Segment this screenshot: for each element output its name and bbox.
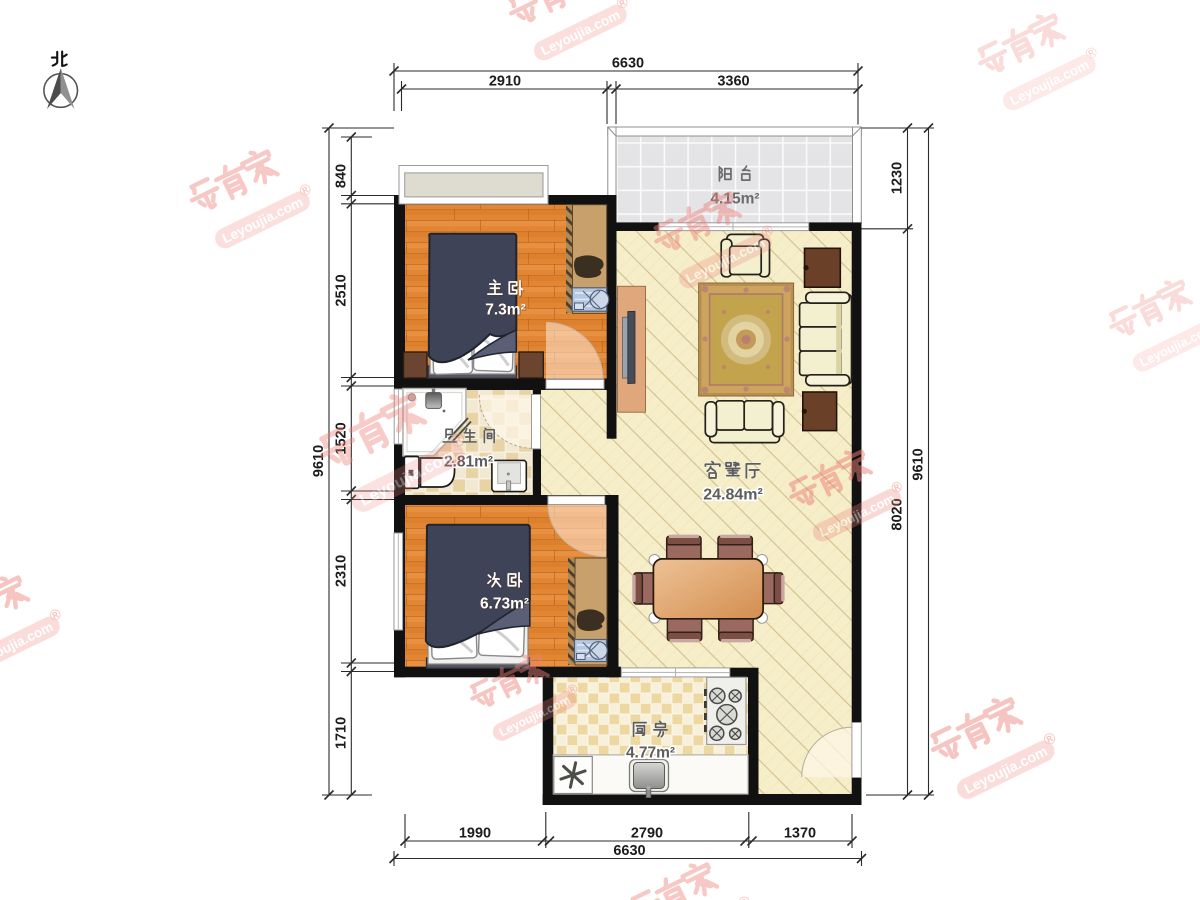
svg-text:6630: 6630 bbox=[613, 843, 645, 859]
svg-text:1710: 1710 bbox=[334, 717, 350, 749]
svg-text:4.77m²: 4.77m² bbox=[626, 745, 675, 762]
svg-text:1990: 1990 bbox=[459, 826, 491, 842]
svg-text:24.84m²: 24.84m² bbox=[703, 487, 763, 504]
svg-text:840: 840 bbox=[334, 164, 350, 188]
svg-text:9610: 9610 bbox=[311, 445, 327, 477]
svg-text:2310: 2310 bbox=[334, 555, 350, 587]
svg-text:2790: 2790 bbox=[631, 826, 663, 842]
svg-text:2510: 2510 bbox=[334, 274, 350, 306]
svg-text:9610: 9610 bbox=[911, 448, 927, 480]
svg-text:6630: 6630 bbox=[612, 56, 644, 72]
svg-text:6.73m²: 6.73m² bbox=[480, 596, 529, 613]
svg-text:2910: 2910 bbox=[489, 74, 521, 90]
svg-text:3360: 3360 bbox=[717, 74, 749, 90]
svg-text:1230: 1230 bbox=[890, 162, 906, 194]
svg-text:7.3m²: 7.3m² bbox=[485, 302, 526, 319]
svg-text:1370: 1370 bbox=[784, 826, 816, 842]
